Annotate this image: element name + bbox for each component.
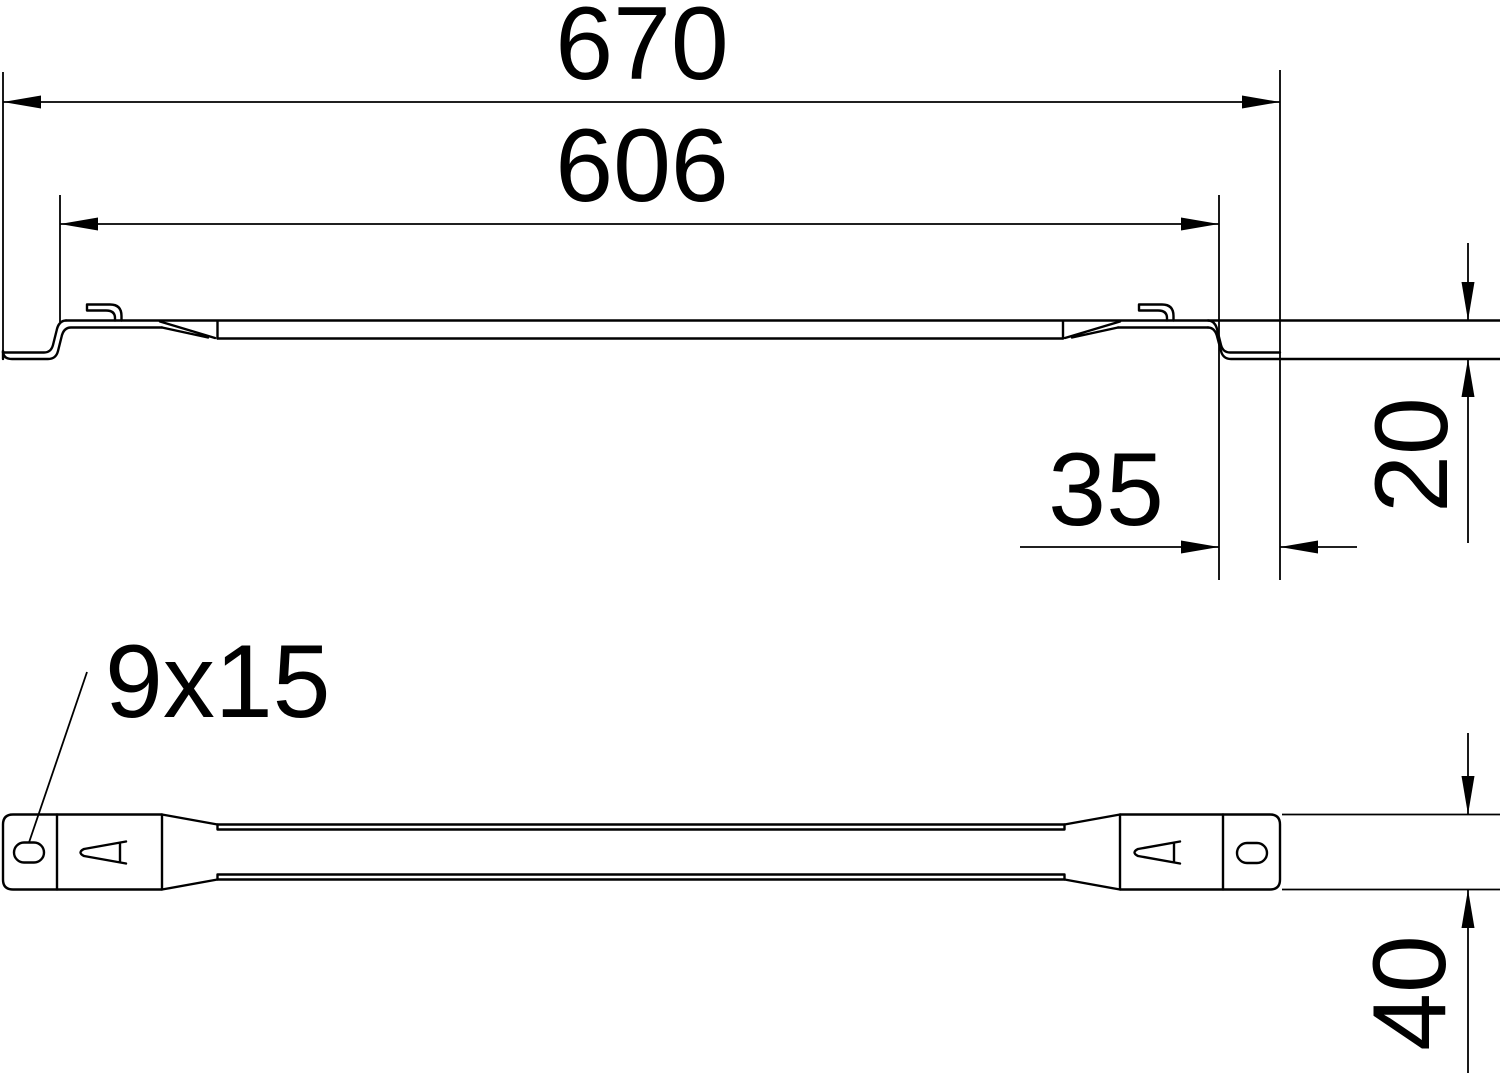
side-right-tab (1139, 305, 1174, 321)
dim-670-arrow-left (3, 96, 41, 109)
dim-40-arrow-bottom (1462, 890, 1475, 929)
dim-20-value: 20 (1354, 397, 1470, 513)
dim-606-arrow-right (1181, 218, 1219, 231)
plan-flange-inner-lines (218, 825, 1065, 880)
side-right-taper-wedge (1063, 321, 1120, 339)
plan-tab-mark-left (81, 842, 127, 864)
side-left-foot-bottom-and-bend (3, 328, 162, 360)
distance-rail-drawing: 670 606 35 20 (0, 0, 1500, 1081)
dimension-35: 35 (1020, 432, 1357, 554)
dim-670-value: 670 (555, 0, 729, 102)
dim-40-arrow-top (1462, 776, 1475, 815)
dim-606-value: 606 (555, 108, 729, 224)
plan-outline (3, 815, 1280, 890)
side-left-foot-top-and-bend (3, 321, 66, 353)
technical-drawing-page: 670 606 35 20 (0, 0, 1500, 1081)
dim-35-arrow-left (1181, 541, 1219, 554)
dim-670-arrow-right (1242, 96, 1280, 109)
plan-tab-mark-right (1135, 842, 1181, 864)
dim-35-arrow-right (1280, 541, 1318, 554)
dimension-40: 40 (1282, 733, 1500, 1073)
dim-606-arrow-left (60, 218, 98, 231)
dim-20-arrow-top (1462, 282, 1475, 321)
side-right-bend-bottom (1208, 328, 1500, 360)
side-profile-view (3, 305, 1500, 360)
dimension-20: 20 (1354, 243, 1475, 543)
plan-slot-right (1237, 843, 1267, 863)
dim-40-value: 40 (1352, 935, 1468, 1051)
dim-20-arrow-bottom (1462, 359, 1475, 397)
slot-size-value: 9x15 (105, 624, 331, 740)
dimension-606: 606 (60, 108, 1219, 580)
plan-view (3, 815, 1280, 890)
plan-slot-left (14, 843, 44, 863)
side-left-tab (87, 305, 122, 321)
slot-size-label: 9x15 (29, 624, 331, 843)
dim-35-value: 35 (1048, 432, 1164, 548)
side-left-taper-wedge (160, 321, 218, 339)
